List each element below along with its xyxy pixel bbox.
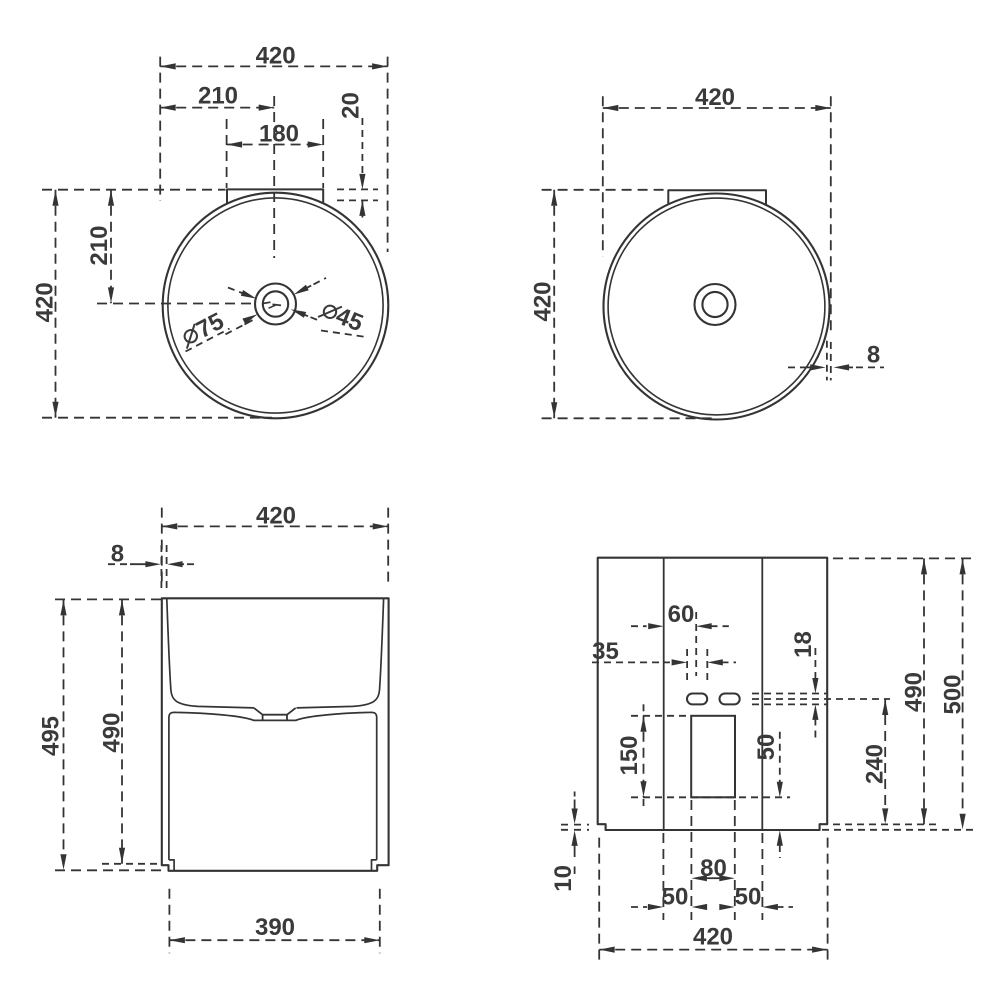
svg-text:420: 420 xyxy=(530,281,557,321)
svg-text:210: 210 xyxy=(198,83,238,110)
svg-text:10: 10 xyxy=(550,865,577,892)
svg-text:60: 60 xyxy=(668,601,695,628)
svg-text:420: 420 xyxy=(31,282,58,322)
svg-text:8: 8 xyxy=(111,540,124,567)
svg-text:240: 240 xyxy=(862,744,889,784)
svg-text:50: 50 xyxy=(662,884,689,911)
svg-text:18: 18 xyxy=(790,631,817,658)
svg-text:210: 210 xyxy=(86,226,113,266)
svg-text:50: 50 xyxy=(735,884,762,911)
svg-text:80: 80 xyxy=(700,855,727,882)
svg-text:420: 420 xyxy=(695,84,735,111)
svg-text:8: 8 xyxy=(867,342,880,369)
svg-text:150: 150 xyxy=(616,735,643,775)
svg-text:180: 180 xyxy=(259,120,299,147)
svg-text:490: 490 xyxy=(99,713,126,753)
svg-text:420: 420 xyxy=(693,924,733,951)
svg-text:390: 390 xyxy=(255,914,295,941)
svg-text:495: 495 xyxy=(38,716,65,756)
svg-text:500: 500 xyxy=(940,674,967,714)
svg-text:20: 20 xyxy=(337,92,364,119)
svg-text:35: 35 xyxy=(592,638,619,665)
svg-text:50: 50 xyxy=(753,734,780,761)
svg-text:490: 490 xyxy=(901,672,928,712)
svg-text:420: 420 xyxy=(256,503,296,530)
svg-text:420: 420 xyxy=(256,43,296,70)
